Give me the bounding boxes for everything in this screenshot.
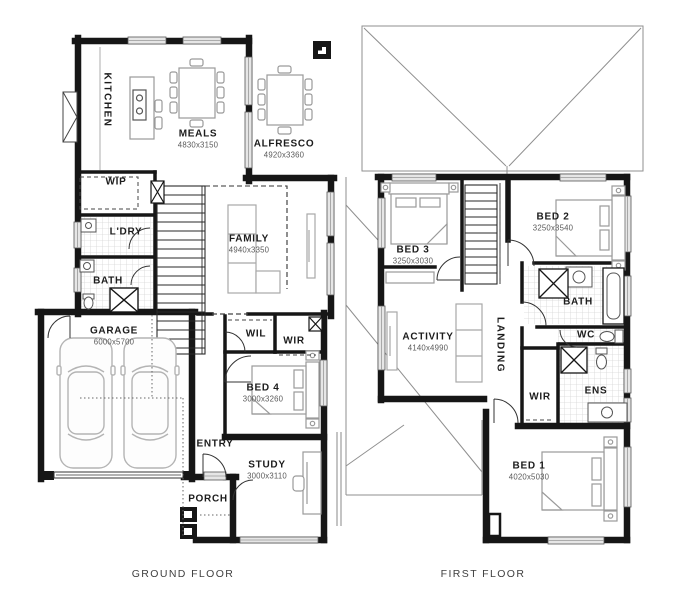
room-label-garage: GARAGE 6000x5700 — [90, 326, 138, 347]
room-label-bath: BATH — [93, 276, 123, 287]
room-label-bed1: BED 1 4020x5030 — [509, 461, 549, 482]
tv-unit-icon — [387, 312, 397, 370]
floorplan-canvas: KITCHEN MEALS 4830x3150 ALFRESCO 4920x33… — [0, 0, 674, 600]
car-icon — [121, 338, 179, 468]
shower-icon — [561, 347, 587, 373]
caption-ground-floor: GROUND FLOOR — [132, 568, 235, 580]
boundary-line — [337, 432, 341, 526]
outdoor-table-icon — [258, 66, 312, 134]
cabinet-icon — [386, 272, 434, 283]
stairs-icon — [157, 186, 205, 354]
first-floor-plan — [346, 26, 643, 544]
tv-unit-icon — [307, 214, 315, 278]
caption-first-floor: FIRST FLOOR — [441, 568, 526, 580]
desk-icon — [293, 452, 321, 514]
room-label-wir: WIR — [283, 336, 305, 347]
room-label-activity: ACTIVITY 4140x4990 — [402, 332, 453, 353]
room-label-bed3: BED 3 3250x3030 — [393, 245, 433, 266]
car-icon — [57, 338, 115, 468]
room-label-bed2: BED 2 3250x3540 — [533, 212, 573, 233]
room-label-family: FAMILY 4940x3350 — [229, 234, 269, 255]
basin-icon — [566, 267, 592, 287]
toilet-icon — [596, 348, 607, 369]
laundry-trough-icon — [81, 219, 96, 232]
room-label-meals: MEALS 4830x3150 — [178, 129, 218, 150]
plan-marker-icon — [313, 41, 331, 59]
room-label-wc: WC — [577, 330, 595, 341]
stairs-icon — [465, 185, 500, 284]
room-label-kitchen: KITCHEN — [102, 73, 113, 128]
room-label-bath-ff: BATH — [563, 297, 593, 308]
room-label-study: STUDY 3000x3110 — [247, 460, 287, 481]
bed-icon — [542, 437, 617, 521]
dining-table-icon — [170, 59, 224, 127]
linen-cupboard-icon — [151, 181, 164, 203]
bathtub-icon — [603, 268, 624, 324]
room-label-landing: LANDING — [495, 317, 506, 373]
ground-floor-plan — [38, 37, 341, 543]
bed-icon — [381, 183, 458, 244]
garage-door — [38, 471, 194, 480]
room-label-wil: WIL — [246, 329, 266, 340]
wall-niche — [489, 514, 500, 536]
room-label-bed4: BED 4 3000x3260 — [243, 383, 283, 404]
room-label-porch: PORCH — [188, 494, 228, 505]
basin-icon — [588, 403, 627, 422]
kitchen-window-box — [63, 92, 77, 142]
room-label-entry: ENTRY — [196, 439, 233, 450]
sofa-icon — [456, 304, 482, 382]
room-label-alfresco: ALFRESCO 4920x3360 — [254, 139, 315, 160]
room-label-wip: WIP — [106, 177, 127, 188]
linen-x-icon — [539, 269, 568, 298]
room-label-ens: ENS — [585, 386, 608, 397]
room-label-ldry: L'DRY — [110, 227, 143, 238]
cupboard-x-icon — [309, 317, 322, 331]
room-label-wir-ff: WIR — [529, 392, 551, 403]
